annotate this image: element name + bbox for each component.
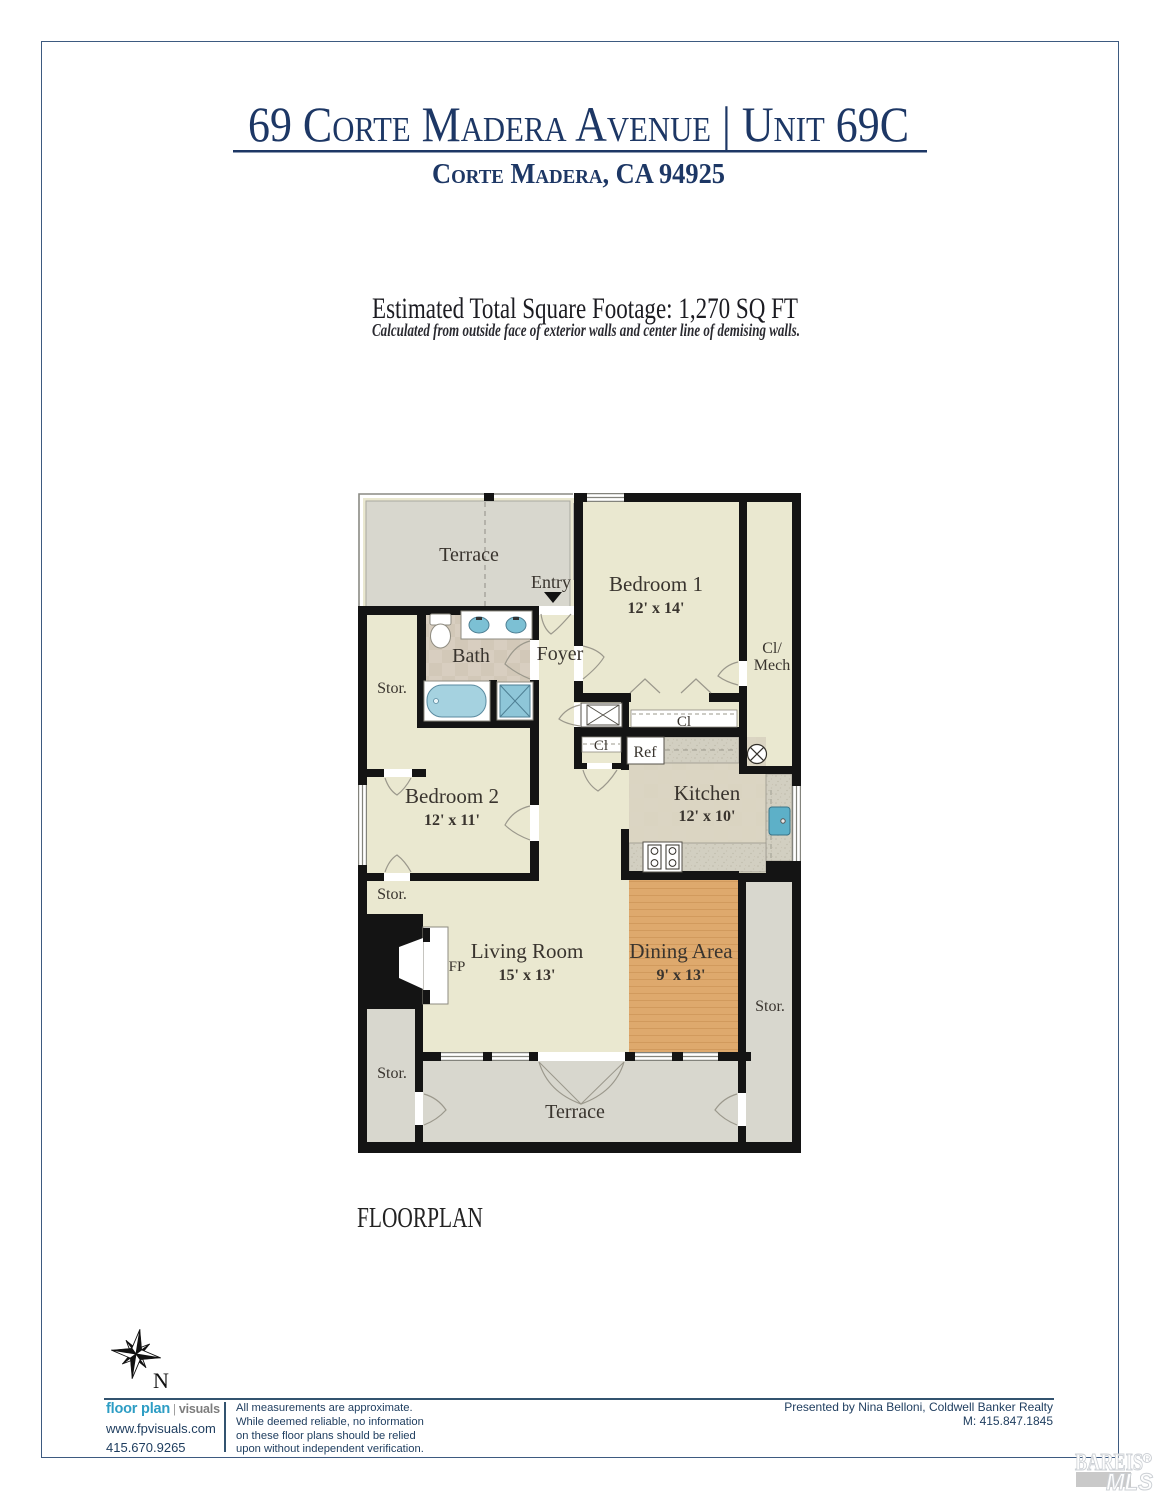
svg-text:MLS: MLS bbox=[1106, 1469, 1153, 1496]
svg-text:Bedroom 2: Bedroom 2 bbox=[405, 784, 499, 808]
svg-text:Cl: Cl bbox=[677, 714, 691, 730]
svg-text:Bath: Bath bbox=[452, 645, 490, 667]
svg-text:FLOORPLAN: FLOORPLAN bbox=[357, 1202, 483, 1234]
svg-text:Stor.: Stor. bbox=[377, 886, 407, 903]
svg-text:69 Corte Madera Avenue | Unit: 69 Corte Madera Avenue | Unit 69C bbox=[248, 96, 909, 152]
svg-text:Ref: Ref bbox=[633, 744, 657, 761]
svg-text:N: N bbox=[153, 1368, 169, 1393]
svg-text:Corte Madera, CA 94925: Corte Madera, CA 94925 bbox=[432, 159, 725, 190]
svg-text:Entry: Entry bbox=[531, 572, 571, 592]
svg-text:12' x 14': 12' x 14' bbox=[628, 600, 685, 617]
svg-text:15' x 13': 15' x 13' bbox=[499, 967, 556, 984]
svg-text:Living Room: Living Room bbox=[471, 939, 584, 963]
svg-text:12' x 11': 12' x 11' bbox=[424, 812, 480, 829]
svg-text:R: R bbox=[1145, 1455, 1151, 1464]
svg-text:Dining Area: Dining Area bbox=[629, 939, 733, 963]
svg-text:Cl/: Cl/ bbox=[762, 640, 782, 657]
svg-text:9' x 13': 9' x 13' bbox=[657, 967, 706, 984]
svg-text:FP: FP bbox=[449, 959, 466, 975]
svg-text:Terrace: Terrace bbox=[439, 544, 499, 566]
svg-text:Mech: Mech bbox=[754, 657, 790, 674]
svg-text:Stor.: Stor. bbox=[755, 998, 785, 1015]
svg-text:Calculated from outside face o: Calculated from outside face of exterior… bbox=[372, 320, 800, 340]
svg-text:Bedroom 1: Bedroom 1 bbox=[609, 572, 703, 596]
svg-text:12' x 10': 12' x 10' bbox=[679, 808, 736, 825]
svg-text:Terrace: Terrace bbox=[545, 1101, 605, 1123]
svg-text:Foyer: Foyer bbox=[537, 643, 584, 665]
svg-text:Cl: Cl bbox=[594, 738, 608, 754]
svg-text:Stor.: Stor. bbox=[377, 680, 407, 697]
svg-text:Kitchen: Kitchen bbox=[674, 781, 741, 805]
svg-text:Stor.: Stor. bbox=[377, 1065, 407, 1082]
